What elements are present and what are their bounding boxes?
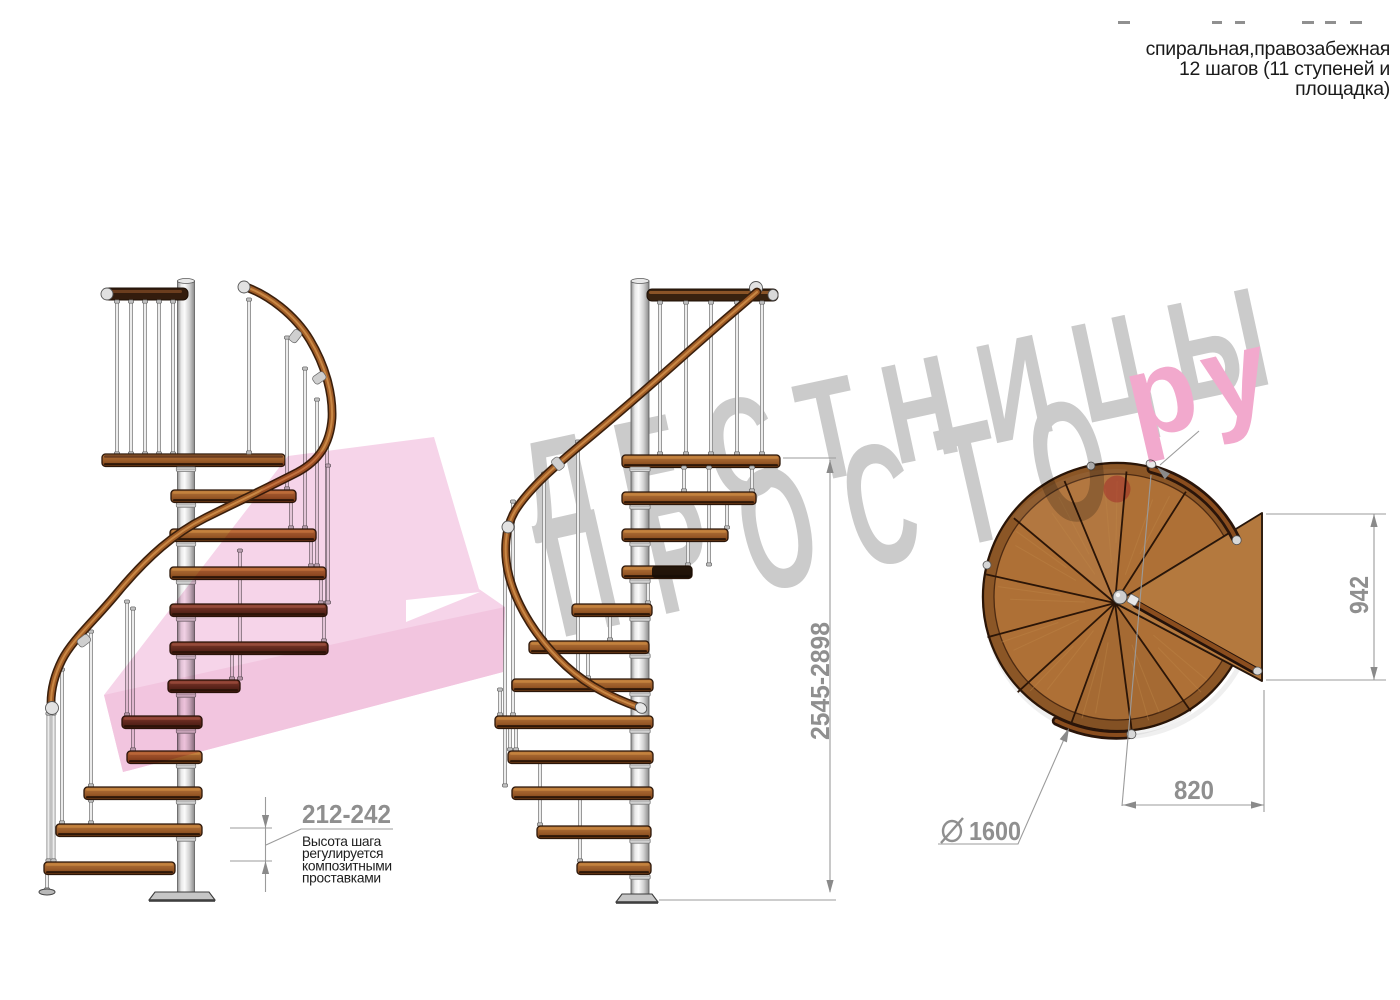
svg-text:212-242: 212-242 — [302, 799, 391, 829]
svg-text:Высота шагарегулируетсякомпози: Высота шагарегулируетсякомпозитнымипрост… — [302, 834, 392, 886]
svg-text:2545-2898: 2545-2898 — [805, 622, 835, 740]
svg-text:1600: 1600 — [969, 816, 1021, 846]
svg-text:820: 820 — [1174, 775, 1214, 805]
svg-text:942: 942 — [1344, 576, 1374, 614]
